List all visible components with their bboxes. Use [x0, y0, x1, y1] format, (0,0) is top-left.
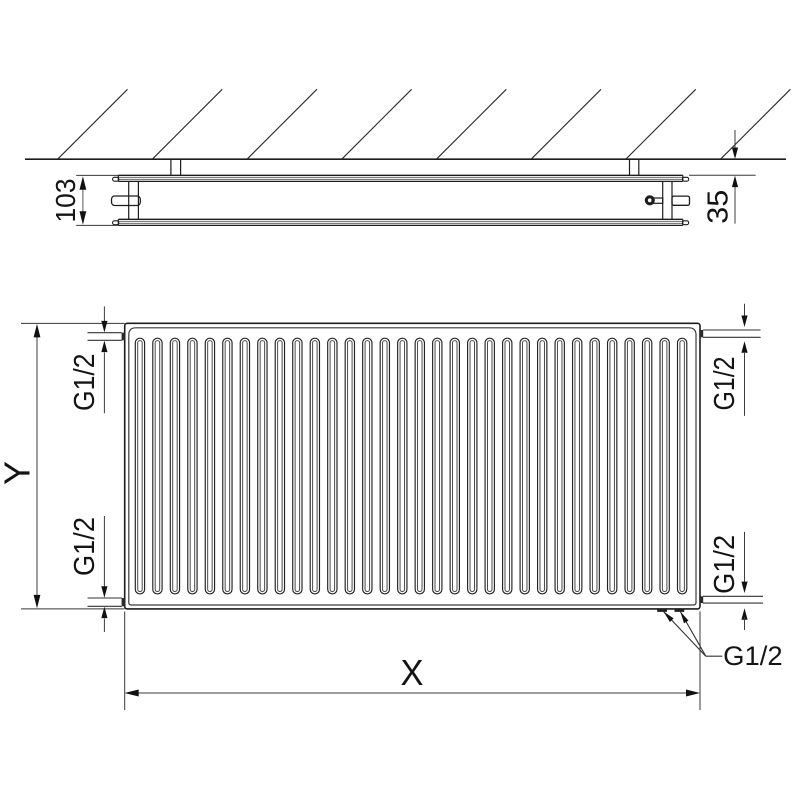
svg-text:G1/2: G1/2	[709, 357, 741, 411]
svg-text:G1/2: G1/2	[69, 517, 101, 576]
svg-text:G1/2: G1/2	[723, 641, 783, 671]
svg-text:Y: Y	[0, 461, 37, 485]
svg-text:G1/2: G1/2	[69, 353, 101, 411]
svg-text:G1/2: G1/2	[709, 535, 741, 594]
svg-text:103: 103	[50, 179, 81, 223]
svg-text:X: X	[401, 652, 424, 693]
svg-text:35: 35	[703, 190, 735, 224]
